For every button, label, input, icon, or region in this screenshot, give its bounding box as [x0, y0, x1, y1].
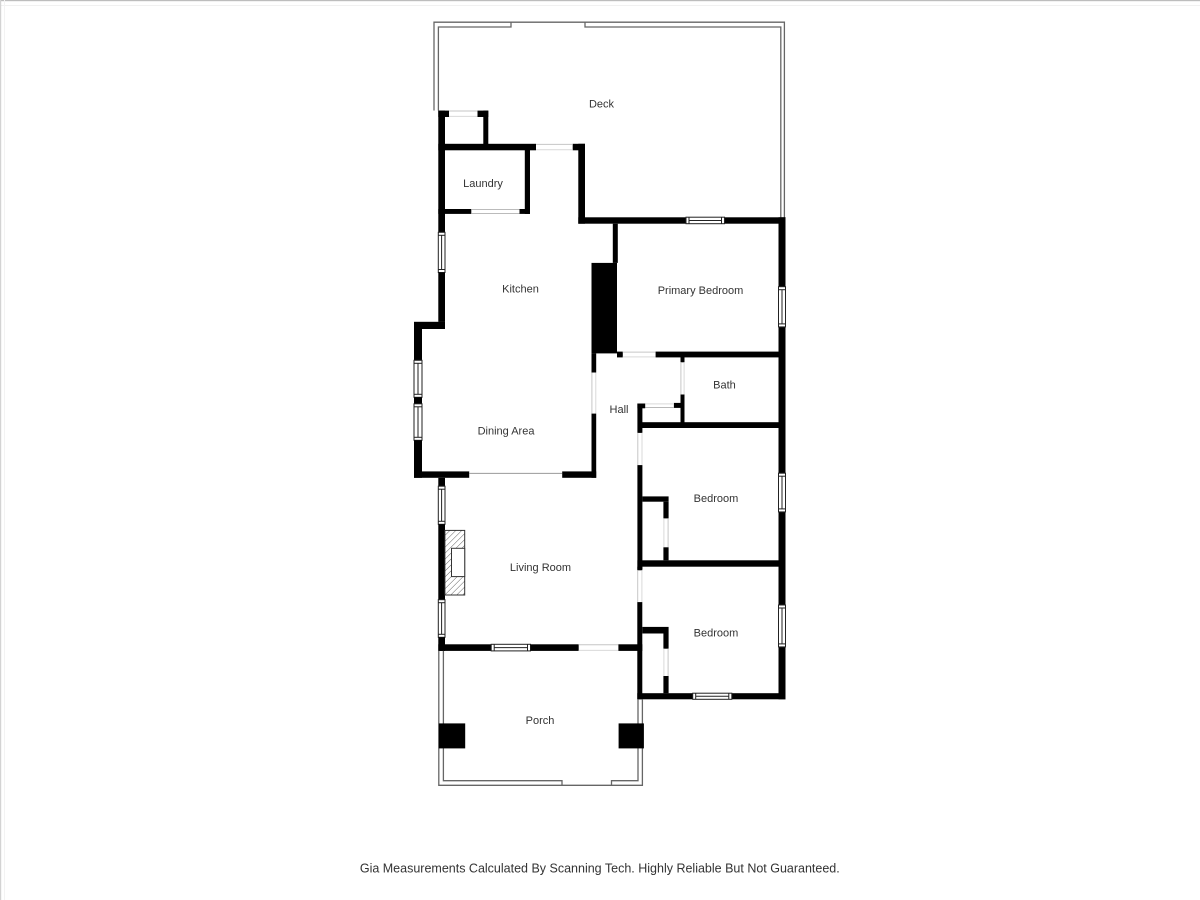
svg-text:Deck: Deck [589, 99, 615, 111]
svg-text:Living Room: Living Room [510, 562, 571, 574]
svg-text:Laundry: Laundry [463, 178, 503, 190]
svg-text:Hall: Hall [610, 404, 629, 416]
svg-text:Bedroom: Bedroom [694, 493, 739, 505]
svg-text:Primary Bedroom: Primary Bedroom [658, 285, 744, 297]
svg-text:Kitchen: Kitchen [502, 284, 539, 296]
svg-text:Porch: Porch [526, 715, 555, 727]
svg-text:Dining Area: Dining Area [478, 426, 536, 438]
svg-text:Bath: Bath [713, 379, 736, 391]
svg-text:Bedroom: Bedroom [694, 627, 739, 639]
svg-text:Gia Measurements Calculated By: Gia Measurements Calculated By Scanning … [360, 861, 840, 875]
